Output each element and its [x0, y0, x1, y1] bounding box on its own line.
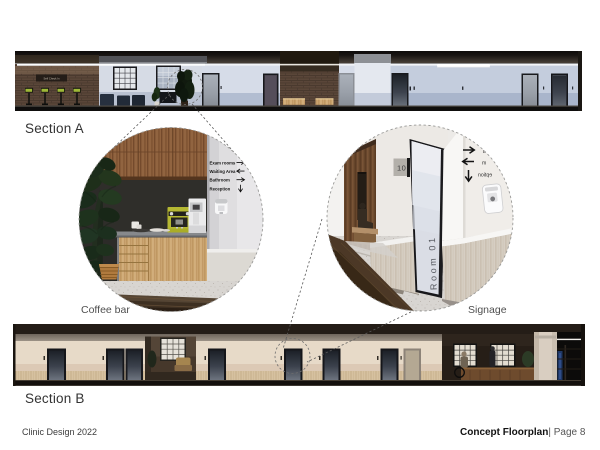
svg-text:Waiting Area: Waiting Area [210, 169, 237, 174]
svg-text:Room 01: Room 01 [427, 235, 439, 290]
svg-text:noitqɘ: noitqɘ [478, 173, 492, 179]
svg-text:ɒ ɘ: ɒ ɘ [483, 149, 490, 155]
svg-text:10: 10 [397, 164, 406, 173]
svg-text:Reception: Reception [210, 186, 231, 191]
svg-text:Exam rooms: Exam rooms [210, 160, 236, 165]
svg-text:m: m [482, 161, 486, 167]
svg-text:Bathroom: Bathroom [210, 178, 230, 183]
svg-text:Self Check In: Self Check In [44, 76, 60, 80]
